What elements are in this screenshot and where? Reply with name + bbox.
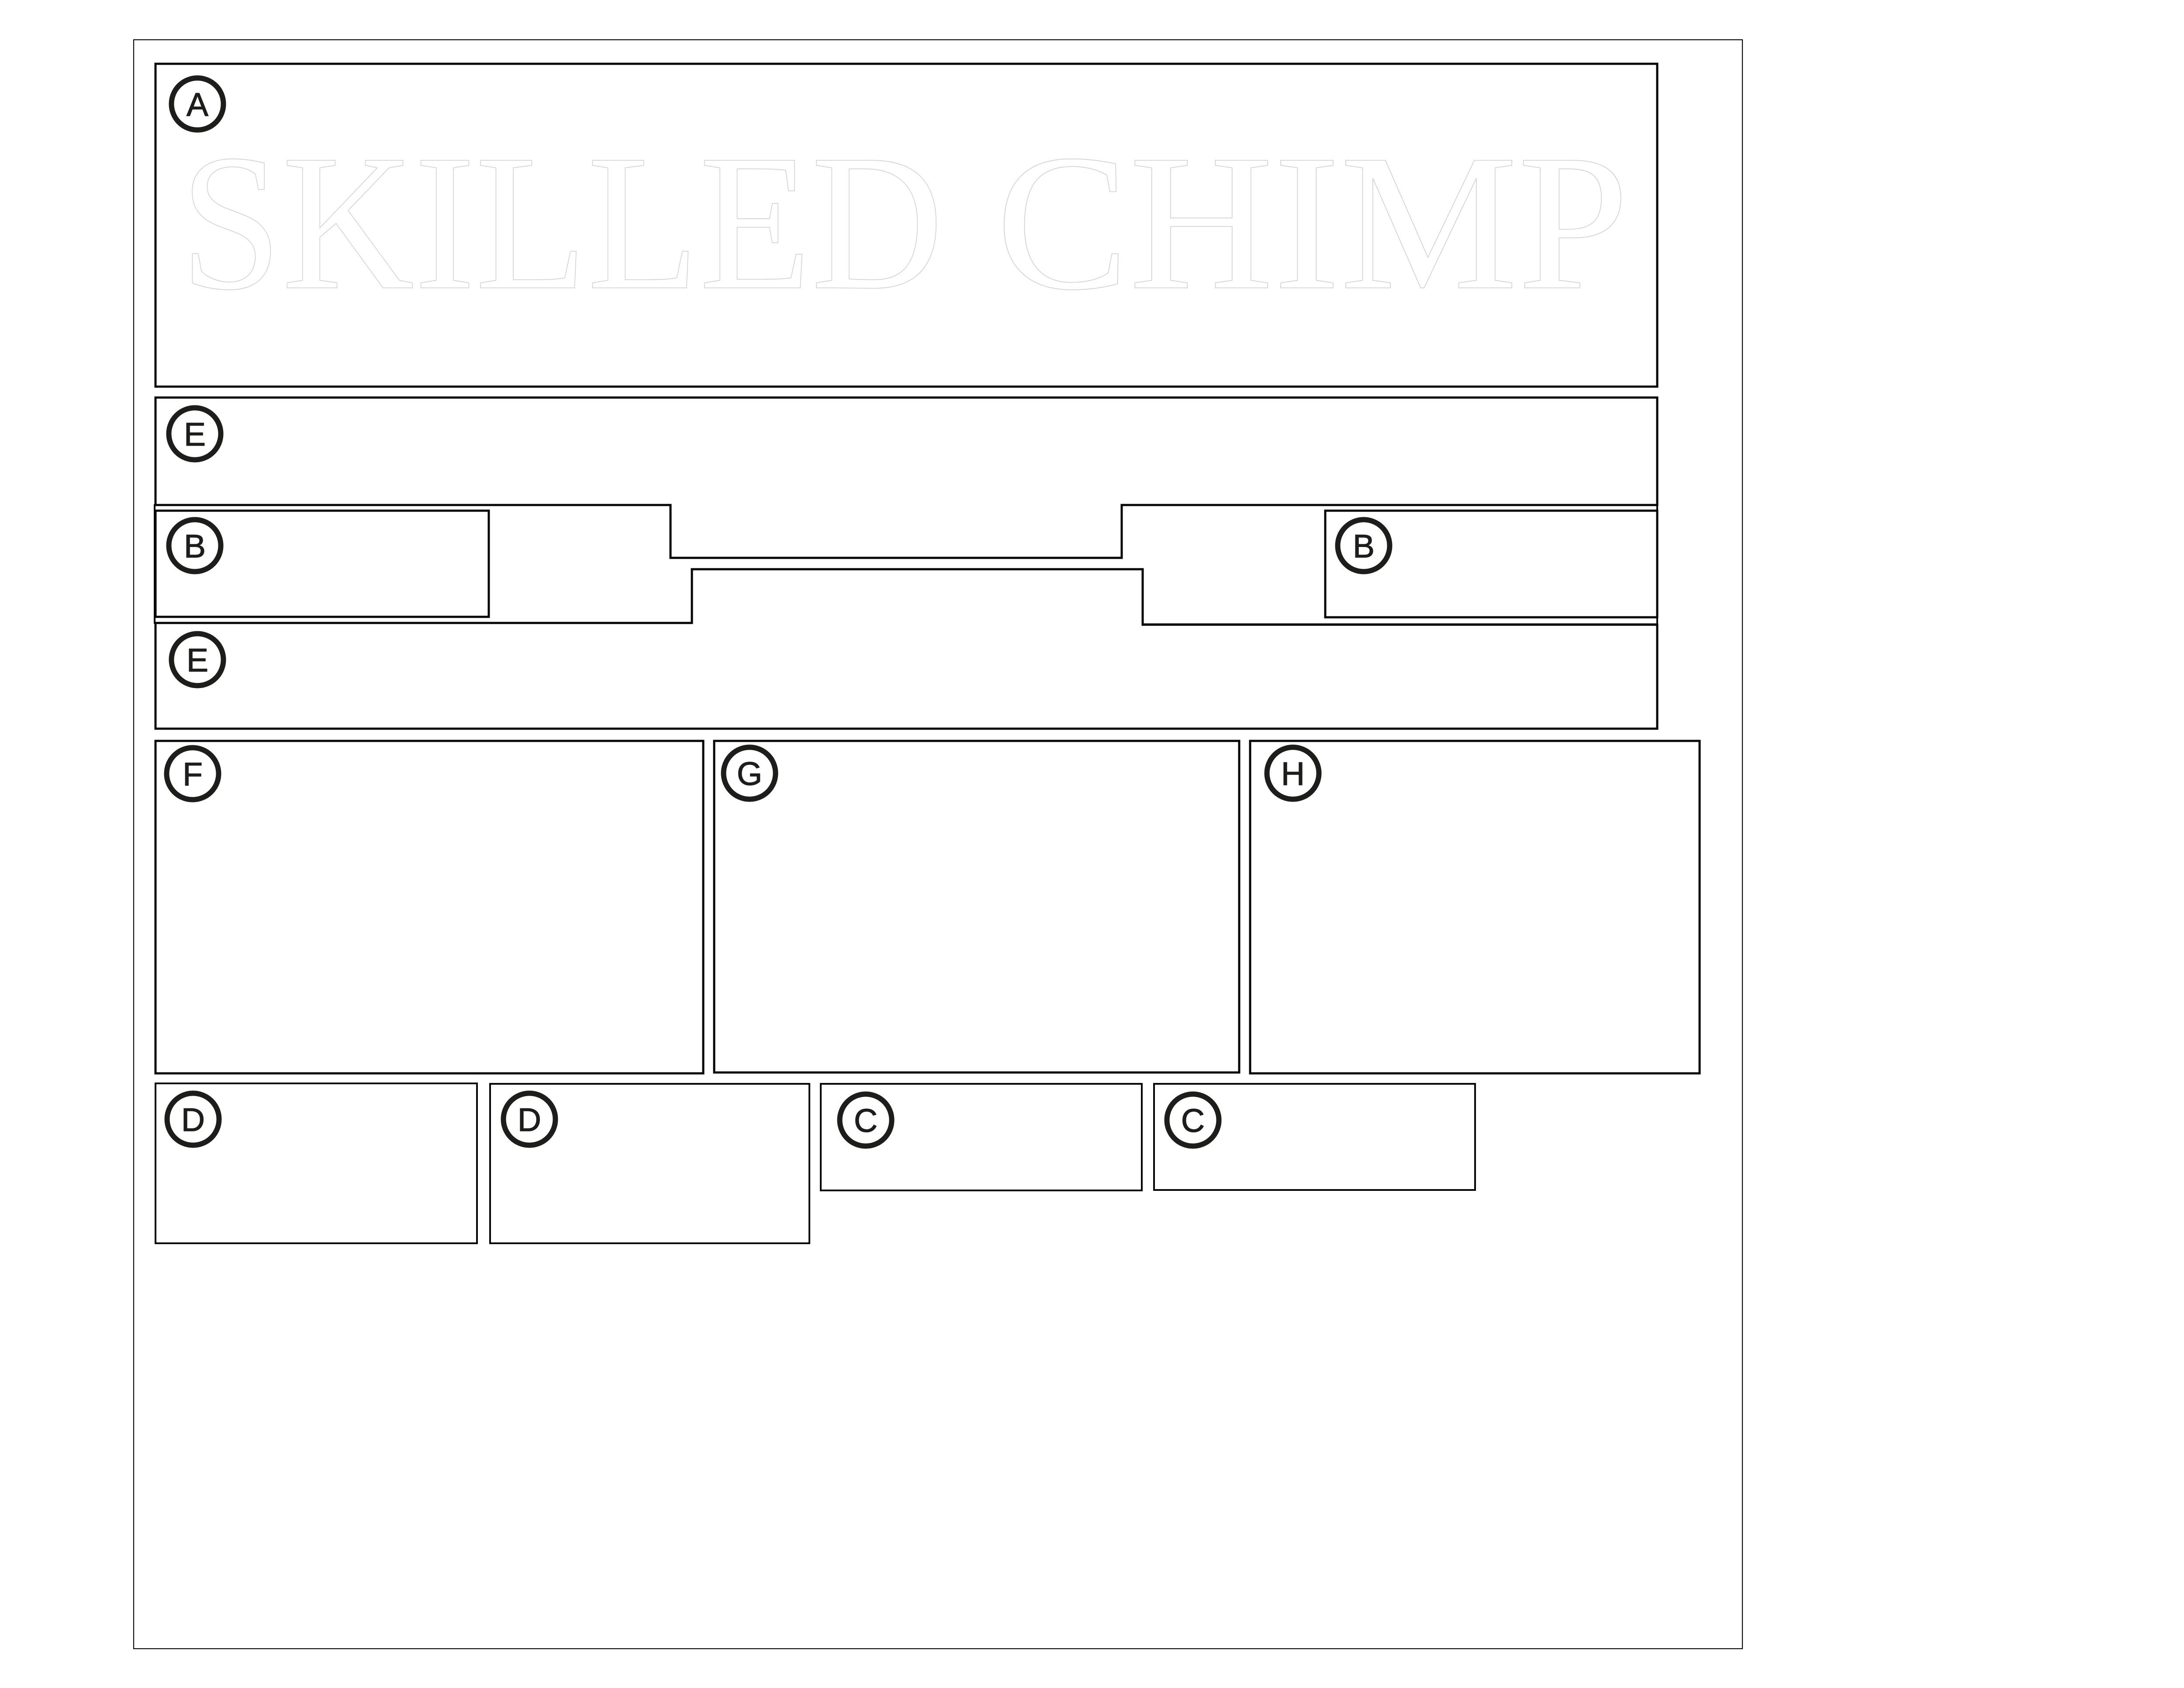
svg-text:A: A <box>187 86 208 123</box>
svg-text:H: H <box>1281 755 1305 792</box>
svg-text:SKILLED: SKILLED <box>180 115 943 330</box>
svg-text:B: B <box>1353 528 1375 564</box>
svg-text:E: E <box>187 642 208 678</box>
svg-text:C: C <box>1181 1102 1205 1139</box>
svg-text:D: D <box>181 1101 205 1138</box>
svg-text:E: E <box>184 416 206 453</box>
svg-text:F: F <box>183 756 203 792</box>
svg-text:G: G <box>737 755 762 792</box>
svg-text:B: B <box>184 528 206 564</box>
svg-text:D: D <box>518 1101 541 1138</box>
svg-text:CHIMP: CHIMP <box>996 115 1629 330</box>
svg-text:C: C <box>854 1102 878 1139</box>
